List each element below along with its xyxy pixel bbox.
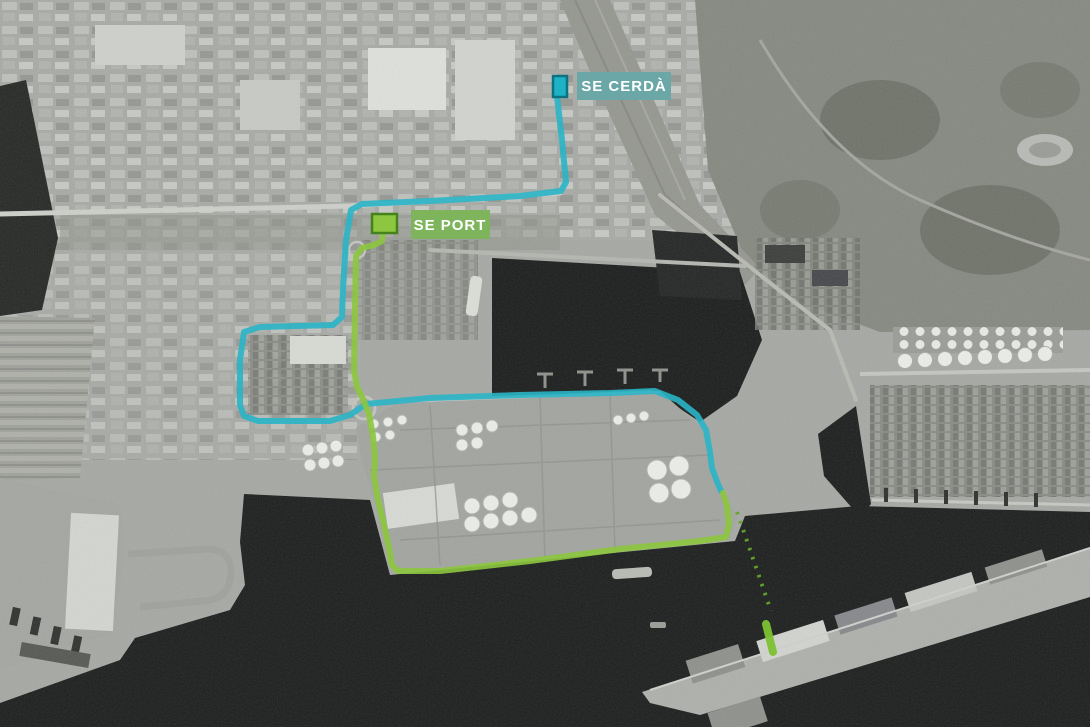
- se-cerda-label: SE CERDÀ: [577, 72, 671, 100]
- se-cerda-marker: [553, 76, 567, 97]
- se-port-label-text: SE PORT: [414, 217, 487, 234]
- satellite-map: SE CERDÀ SE PORT: [0, 0, 1090, 727]
- se-port-marker: [372, 214, 397, 233]
- satellite-map-canvas: SE CERDÀ SE PORT: [0, 0, 1090, 727]
- se-cerda-label-text: SE CERDÀ: [581, 78, 667, 95]
- photo-grain-overlay: [0, 0, 1090, 727]
- se-port-label: SE PORT: [411, 210, 490, 239]
